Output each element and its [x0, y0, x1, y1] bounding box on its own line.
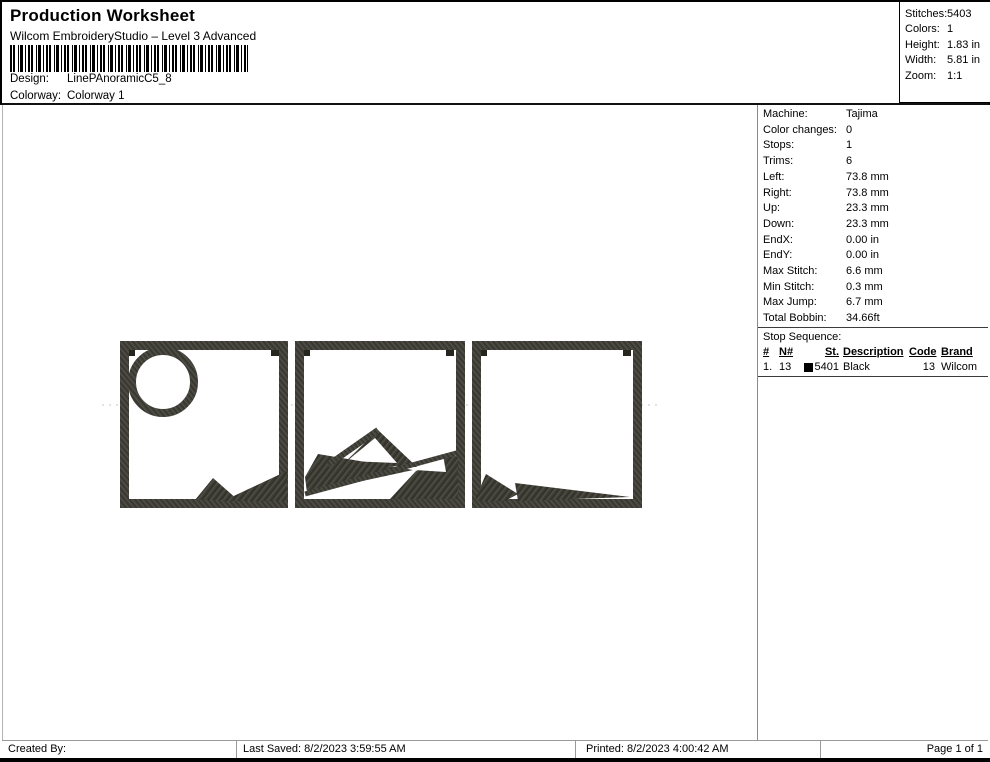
info-color-changes: Color changes:0	[763, 123, 988, 139]
design-panel-3	[476, 346, 638, 504]
design-panel-2	[300, 346, 461, 504]
info-left: Left:73.8 mm	[763, 170, 988, 186]
info-trims: Trims:6	[763, 154, 988, 170]
software-subtitle: Wilcom EmbroideryStudio – Level 3 Advanc…	[10, 29, 256, 43]
machine-info-panel: Machine:Tajima Color changes:0 Stops:1 T…	[757, 105, 988, 740]
stat-width: Width: 5.81 in	[905, 53, 990, 68]
stat-zoom: Zoom: 1:1	[905, 69, 990, 84]
worksheet-footer: Created By: Last Saved: 8/2/2023 3:59:55…	[2, 740, 988, 758]
printed-cell: Printed: 8/2/2023 4:00:42 AM	[575, 741, 820, 758]
colorway-row: Colorway: Colorway 1	[10, 90, 125, 102]
stats-box: Stitches: 5403 Colors: 1 Height: 1.83 in…	[899, 2, 990, 103]
last-saved-cell: Last Saved: 8/2/2023 3:59:55 AM	[236, 741, 575, 758]
colorway-label: Colorway:	[10, 90, 67, 102]
stat-height: Height: 1.83 in	[905, 38, 990, 53]
design-panel-1	[125, 346, 288, 504]
created-by-cell: Created By:	[2, 741, 236, 758]
thread-color-swatch	[804, 363, 813, 372]
table-bottom-rule	[758, 376, 988, 377]
info-right: Right:73.8 mm	[763, 186, 988, 202]
info-up: Up:23.3 mm	[763, 201, 988, 217]
page-title: Production Worksheet	[10, 6, 195, 26]
info-endx: EndX:0.00 in	[763, 233, 988, 249]
stop-sequence-header: # N# St. Description Code Brand	[758, 345, 988, 360]
design-barcode	[10, 45, 248, 72]
info-total-bobbin: Total Bobbin:34.66ft	[763, 311, 988, 327]
stop-sequence-row: 1. 13 5401 Black 13 Wilcom	[758, 360, 988, 375]
page-number-cell: Page 1 of 1	[820, 741, 988, 758]
design-name-row: Design: LinePAnoramicC5_8	[10, 73, 172, 85]
info-max-stitch: Max Stitch:6.6 mm	[763, 264, 988, 280]
info-machine: Machine:Tajima	[763, 107, 988, 123]
stat-stitches: Stitches: 5403	[905, 7, 990, 22]
design-label: Design:	[10, 73, 67, 85]
worksheet-header: Production Worksheet Wilcom EmbroiderySt…	[0, 0, 990, 105]
info-max-jump: Max Jump:6.7 mm	[763, 295, 988, 311]
embroidery-design-preview	[2, 105, 757, 740]
machine-info-rows: Machine:Tajima Color changes:0 Stops:1 T…	[758, 105, 988, 327]
info-stops: Stops:1	[763, 138, 988, 154]
design-value: LinePAnoramicC5_8	[67, 73, 172, 85]
info-down: Down:23.3 mm	[763, 217, 988, 233]
stat-colors: Colors: 1	[905, 22, 990, 37]
info-endy: EndY:0.00 in	[763, 248, 988, 264]
colorway-value: Colorway 1	[67, 90, 125, 102]
page-bottom-bar	[0, 758, 990, 762]
stop-sequence-title: Stop Sequence:	[758, 328, 988, 345]
info-min-stitch: Min Stitch:0.3 mm	[763, 280, 988, 296]
